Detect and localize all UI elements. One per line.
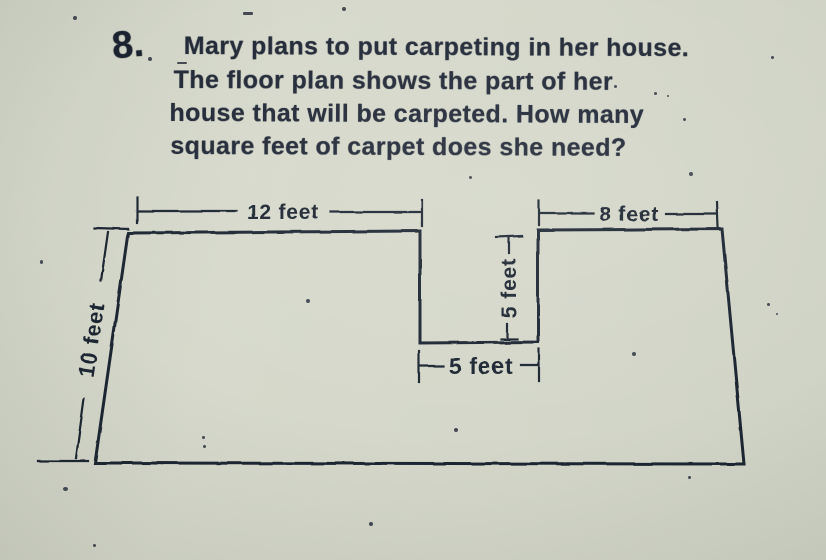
dimension-top-right-width: 8 feet bbox=[539, 201, 718, 227]
label-10-feet: 10 feet bbox=[74, 301, 110, 379]
dimension-top-left-width: 12 feet bbox=[137, 197, 422, 226]
dimension-left-height: 10 feet bbox=[38, 228, 128, 461]
dimension-notch-width: 5 feet bbox=[419, 349, 539, 382]
dimension-notch-depth: 5 feet bbox=[496, 236, 522, 339]
floor-plan-diagram: 12 feet 8 feet 10 feet bbox=[0, 0, 826, 560]
label-8-feet: 8 feet bbox=[599, 203, 659, 226]
floor-plan-outline bbox=[95, 229, 744, 464]
worksheet-page: 8. Mary plans to put carpeting in her ho… bbox=[0, 0, 826, 560]
label-12-feet: 12 feet bbox=[247, 201, 319, 224]
label-5-feet-depth: 5 feet bbox=[498, 258, 521, 318]
label-5-feet-width: 5 feet bbox=[449, 353, 514, 379]
